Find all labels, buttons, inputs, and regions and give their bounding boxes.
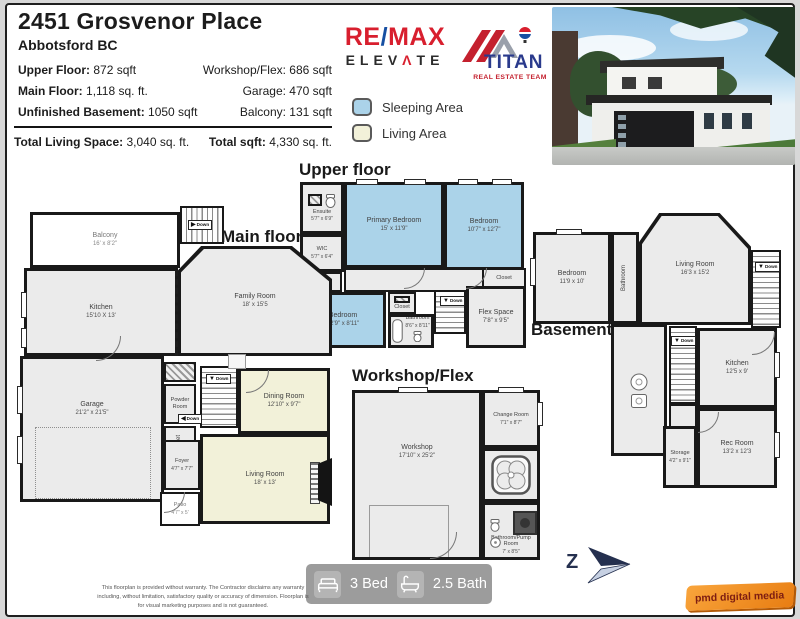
room-dims: 8'6" x 8'11": [405, 323, 429, 329]
window: [704, 113, 714, 129]
room-living-room-basement: Living Room 16'3 x 15'2: [639, 213, 751, 325]
stat-label: Garage:: [243, 84, 286, 98]
titan-logo: TITAN REAL ESTATE TEAM: [460, 26, 560, 90]
compass-letter: Z: [566, 551, 578, 574]
room-name: Family Room: [234, 293, 275, 301]
room-name: Powder Room: [166, 397, 194, 410]
stat-label: Unfinished Basement:: [18, 105, 145, 119]
stats-right: Workshop/Flex: 686 sqft Garage: 470 sqft…: [180, 60, 332, 123]
room-name: Storage: [670, 450, 689, 457]
toilet-icon: [413, 331, 422, 342]
legend-label: Sleeping Area: [382, 100, 463, 115]
down-label: ▼Down: [755, 262, 780, 272]
family-room-floor: Family Room 18' x 15'5: [181, 249, 329, 353]
room-bedroom-basement: Bedroom 11'9 x 10': [533, 232, 611, 324]
workshop-title: Workshop/Flex: [352, 366, 474, 386]
room-dims: 17'10" x 25'2": [399, 453, 435, 460]
stat-workshop: Workshop/Flex: 686 sqft: [180, 60, 332, 81]
washer-icon: [630, 373, 648, 391]
stat-label: Total Living Space:: [14, 135, 123, 149]
bath-icon: [400, 574, 420, 594]
remax-max: MAX: [388, 23, 445, 51]
linen-hatch: [164, 362, 196, 382]
appliance-icon: [228, 354, 246, 369]
remax-wordmark: RE/MAX: [336, 24, 454, 50]
room-dims: 12'5 x 9': [726, 369, 748, 376]
room-dims: 10'7" x 12'7": [468, 227, 501, 234]
room-name: Bedroom: [329, 312, 357, 320]
shower-icon: [308, 194, 322, 206]
room-dims: 7'8" x 9'5": [483, 318, 509, 325]
room-bathroom-pump: Bathroom/Pump Room 7' x 8'5": [482, 502, 540, 560]
down-label: ◀Down: [178, 414, 202, 424]
down-text: Down: [197, 223, 210, 228]
sleeping-area-swatch: [352, 98, 372, 116]
window-marker: [492, 179, 512, 185]
stat-value: 1,118 sq. ft.: [86, 84, 148, 98]
room-bathroom-upper: Bathroom 8'6" x 8'11": [388, 314, 434, 348]
room-closet: Closet: [482, 268, 526, 288]
room-name: Foyer: [175, 458, 189, 465]
stat-garage: Garage: 470 sqft: [180, 81, 332, 102]
credit-badge: pmd digital media: [685, 582, 795, 611]
room-name: Living Room: [676, 261, 715, 269]
window-marker: [556, 229, 582, 235]
bathtub-icon: [392, 319, 403, 343]
down-arrow-icon: ▼: [758, 264, 764, 270]
stat-upper-floor: Upper Floor: 872 sqft: [18, 60, 197, 81]
window-marker: [17, 436, 23, 464]
window-marker: [530, 258, 536, 286]
room-balcony: Balcony 16' x 8'2": [30, 212, 180, 268]
room-dims: 16' x 8'2": [93, 241, 117, 248]
disclaimer-line: including, without limitation, satisfact…: [38, 593, 368, 602]
room-dims: 7' x 8'5": [502, 549, 519, 555]
disclaimer-line: This floorplan is provided without warra…: [38, 584, 368, 593]
fireplace-icon: [318, 458, 332, 506]
legend-item-sleeping: Sleeping Area: [352, 94, 463, 120]
room-storage: Storage 4'2" x 9'1": [663, 426, 697, 488]
elevate-post: TE: [417, 52, 445, 68]
legend: Sleeping Area Living Area: [352, 94, 463, 146]
living-area-swatch: [352, 124, 372, 142]
disclaimer-line: for visual marketing purposes and is not…: [38, 602, 368, 611]
room-dims: 5'7" x 6'9": [311, 216, 333, 222]
stats-totals: Total Living Space: 3,040 sq. ft. Total …: [14, 131, 332, 153]
shower-dark-icon: [513, 511, 537, 535]
room-name: Flex Space: [478, 309, 513, 317]
hot-tub-room: [482, 448, 540, 502]
stats-left: Upper Floor: 872 sqft Main Floor: 1,118 …: [18, 60, 197, 123]
driveway: [552, 147, 795, 165]
room-flex-space: Flex Space 7'8" x 9'5": [466, 286, 526, 348]
window-marker: [398, 387, 428, 393]
down-arrow-icon: ▼: [209, 376, 215, 382]
room-dims: 4'7" x 5': [171, 510, 188, 516]
garage-door-outline: [35, 427, 151, 499]
toilet-icon: [490, 519, 500, 532]
stat-label: Main Floor:: [18, 84, 83, 98]
down-text: Down: [187, 417, 200, 422]
room-name: Ensuite: [313, 209, 331, 216]
room-workshop: Workshop 17'10" x 25'2": [352, 390, 482, 560]
remax-slash: /: [381, 23, 388, 51]
bath-icon-tile: [397, 571, 424, 598]
down-label: ▼Down: [206, 374, 231, 384]
room-name: Living Room: [246, 471, 285, 479]
room-dims: 12'10" x 9'7": [268, 402, 301, 409]
room-closet: Closet: [388, 292, 416, 314]
ensuite-fixtures: [308, 194, 336, 208]
down-text: Down: [681, 339, 694, 344]
sink-icon: [490, 537, 501, 548]
room-dims: 18' x 13': [254, 480, 276, 487]
room-dims: 15'10 X 13': [86, 313, 116, 320]
stat-balcony: Balcony: 131 sqft: [180, 102, 332, 123]
room-family-room: Family Room 18' x 15'5: [178, 246, 332, 356]
window: [742, 113, 752, 129]
stats-divider: [14, 126, 332, 128]
down-arrow-icon: ▼: [674, 338, 680, 344]
hot-tub-icon: [491, 455, 531, 495]
room-bedroom-2: Bedroom 10'7" x 12'7": [444, 182, 524, 270]
window-marker: [21, 292, 27, 318]
remax-balloon-icon: [518, 26, 532, 46]
stat-main-floor: Main Floor: 1,118 sq. ft.: [18, 81, 197, 102]
upper-floor-title: Upper floor: [299, 160, 391, 180]
window-marker: [458, 179, 478, 185]
legend-item-living: Living Area: [352, 120, 463, 146]
basement-laundry-hall: [611, 324, 667, 456]
down-arrow-icon: ▼: [443, 298, 449, 304]
page-subtitle: Abbotsford BC: [18, 37, 118, 53]
compass-arrow-icon: [584, 543, 632, 585]
window-marker: [356, 179, 378, 185]
room-dims: 7'1" x 8'7": [500, 420, 522, 426]
window-marker: [17, 386, 23, 414]
baths-badge: 2.5 Bath: [433, 576, 487, 592]
garage-door-windows: [618, 115, 626, 147]
window: [648, 77, 662, 89]
down-arrow-icon: ◀: [181, 416, 186, 422]
window-marker: [537, 402, 543, 426]
stat-label: Balcony:: [240, 105, 286, 119]
stat-label: Upper Floor:: [18, 63, 90, 77]
credit-text: pmd digital media: [695, 589, 785, 604]
window-marker: [404, 179, 426, 185]
room-name: Workshop: [401, 444, 432, 452]
kitchen-family-divider: [175, 270, 178, 356]
basement-hall-patch: [669, 404, 697, 428]
window-marker: [21, 328, 27, 348]
disclaimer: This floorplan is provided without warra…: [38, 584, 368, 611]
room-ensuite: Ensuite 5'7" x 6'9": [300, 182, 344, 234]
total-living-space: Total Living Space: 3,040 sq. ft.: [14, 131, 189, 153]
room-name: Bathroom: [621, 265, 628, 291]
closet-hatch: [394, 296, 410, 303]
stat-value: 3,040 sq. ft.: [126, 135, 189, 149]
garage-door: [614, 111, 694, 149]
room-name: Balcony: [93, 232, 118, 240]
window-marker: [774, 432, 780, 458]
elevate-caret: Λ: [402, 52, 416, 68]
room-primary-bedroom: Primary Bedroom 15' x 11'9": [344, 182, 444, 268]
room-name: Kitchen: [725, 360, 748, 368]
window: [622, 77, 636, 89]
main-floor-title: Main floor: [221, 227, 302, 247]
room-dims: 16'3 x 15'2: [681, 270, 710, 277]
room-name: Garage: [80, 401, 103, 409]
stat-value: 872 sqft: [93, 63, 136, 77]
room-dims: 11'9 x 10': [560, 279, 585, 286]
room-name: Bathroom: [405, 315, 429, 322]
stat-value: 686 sqft: [289, 63, 332, 77]
remax-re: RE: [345, 23, 381, 51]
stat-label: Workshop/Flex:: [203, 63, 286, 77]
down-label: ▶Down: [188, 220, 212, 230]
room-garage: Garage 21'2" x 21'5": [20, 356, 164, 502]
room-change-room: Change Room 7'1" x 8'7": [482, 390, 540, 448]
legend-label: Living Area: [382, 126, 446, 141]
stat-value: 131 sqft: [289, 105, 332, 119]
down-text: Down: [450, 299, 463, 304]
closet-label: Closet: [496, 275, 512, 282]
down-text: Down: [216, 377, 229, 382]
room-dims: 4'2" x 9'1": [669, 458, 691, 464]
stat-value: 4,330 sq. ft.: [269, 135, 332, 149]
total-sqft: Total sqft: 4,330 sq. ft.: [209, 131, 332, 153]
stat-label: Total sqft:: [209, 135, 266, 149]
window: [722, 113, 732, 129]
room-dims: 15' x 11'9": [381, 226, 408, 233]
closet-label: Closet: [394, 304, 410, 311]
room-dims: 4'7" x 7'7": [171, 466, 193, 472]
room-name: Kitchen: [89, 304, 112, 312]
window-marker: [774, 352, 780, 378]
property-photo: [552, 7, 795, 165]
down-label: ▼Down: [440, 296, 465, 306]
dryer-icon: [631, 394, 647, 408]
room-foyer: Foyer 4'7" x 7'7": [164, 440, 200, 490]
titan-tagline: REAL ESTATE TEAM: [460, 74, 560, 81]
room-name: Change Room: [493, 412, 528, 419]
bathroom-label-wrap: Bathroom 8'6" x 8'11": [405, 315, 429, 347]
page-title: 2451 Grosvenor Place: [18, 8, 262, 35]
stat-value: 470 sqft: [289, 84, 332, 98]
room-bathroom-basement: Bathroom: [611, 232, 639, 324]
toilet-icon: [325, 194, 336, 208]
down-text: Down: [765, 265, 778, 270]
elevate-pre: ELEV: [346, 52, 403, 68]
window-marker: [498, 387, 524, 393]
room-name: Primary Bedroom: [367, 217, 421, 225]
titan-wordmark: TITAN: [484, 52, 544, 74]
room-name: Bedroom: [470, 218, 498, 226]
stat-basement: Unfinished Basement: 1050 sqft: [18, 102, 197, 123]
down-label: ▼Down: [671, 336, 696, 346]
room-dims: 18' x 15'5: [242, 302, 267, 309]
down-arrow-icon: ▶: [191, 222, 196, 228]
room-dims: 21'2" x 21'5": [76, 410, 109, 417]
remax-elevate-logo: RE/MAX ELEVΛTE: [336, 24, 454, 68]
room-dims: 13'2 x 12'3: [723, 449, 752, 456]
room-name: Bedroom: [558, 270, 586, 278]
room-name: Rec Room: [720, 440, 753, 448]
elevate-wordmark: ELEVΛTE: [336, 52, 454, 68]
basement-living-floor: Living Room 16'3 x 15'2: [642, 216, 748, 322]
room-name: Dining Room: [264, 393, 304, 401]
